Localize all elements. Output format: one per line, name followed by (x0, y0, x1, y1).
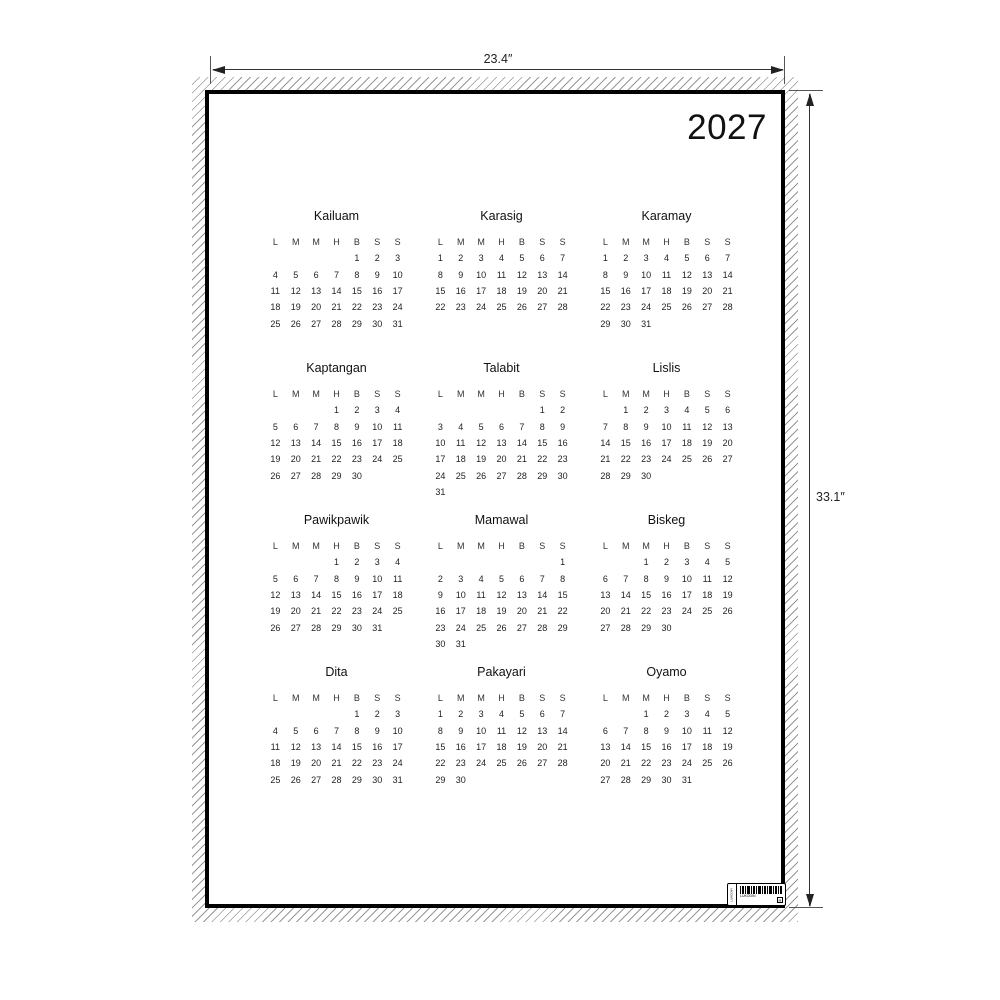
day-cell: 31 (636, 315, 656, 331)
day-cell: 7 (326, 267, 346, 283)
day-cell: 30 (367, 315, 387, 331)
empty-day-cell (491, 484, 511, 500)
day-cell: 12 (286, 283, 306, 299)
day-cell: 21 (552, 739, 572, 755)
day-cell: 20 (286, 451, 306, 467)
day-cell: 3 (471, 250, 491, 266)
day-cell: 29 (636, 619, 656, 635)
day-cell: 9 (347, 419, 367, 435)
day-cell: 6 (306, 267, 326, 283)
day-cell: 30 (656, 771, 676, 787)
day-cell: 14 (326, 283, 346, 299)
day-cell: 17 (656, 435, 676, 451)
day-cell: 9 (552, 419, 572, 435)
weekday-letter: L (595, 538, 615, 554)
day-cell: 8 (636, 723, 656, 739)
empty-day-cell (451, 402, 471, 418)
empty-day-cell (471, 771, 491, 787)
day-cell: 13 (306, 283, 326, 299)
day-cell: 1 (326, 402, 346, 418)
day-cell: 29 (326, 619, 346, 635)
barcode-label: LUKODIN LUKODIN R (727, 883, 786, 906)
weekday-letter: L (265, 386, 285, 402)
weekday-letter: M (471, 690, 491, 706)
weekday-letter: B (677, 538, 697, 554)
day-cell: 24 (387, 299, 407, 315)
day-cell: 11 (491, 723, 511, 739)
day-cell: 19 (265, 603, 285, 619)
day-cell: 11 (387, 419, 407, 435)
day-cell: 8 (430, 267, 450, 283)
day-cell: 29 (552, 619, 572, 635)
weekday-letter: S (717, 690, 737, 706)
day-cell: 23 (656, 755, 676, 771)
weekday-letter: M (616, 386, 636, 402)
day-cell: 30 (347, 467, 367, 483)
day-cell: 11 (265, 739, 285, 755)
empty-day-cell (306, 402, 326, 418)
day-cell: 4 (265, 723, 285, 739)
day-cell: 22 (636, 755, 656, 771)
day-cell: 7 (306, 571, 326, 587)
day-cell: 1 (636, 706, 656, 722)
weekday-letter: S (387, 690, 407, 706)
day-cell: 21 (616, 755, 636, 771)
weekday-letter: H (656, 234, 676, 250)
empty-day-cell (697, 467, 717, 483)
day-cell: 15 (595, 283, 615, 299)
day-cell: 24 (451, 619, 471, 635)
day-cell: 5 (512, 706, 532, 722)
day-cell: 10 (430, 435, 450, 451)
day-cell: 27 (717, 451, 737, 467)
weekday-letter: L (595, 690, 615, 706)
day-cell: 14 (616, 587, 636, 603)
day-cell: 3 (677, 554, 697, 570)
weekday-letter: L (265, 538, 285, 554)
day-cell: 3 (451, 571, 471, 587)
day-cell: 29 (636, 771, 656, 787)
day-cell: 28 (306, 619, 326, 635)
empty-day-cell (451, 554, 471, 570)
weekday-letter: H (326, 538, 346, 554)
weekday-letter: H (326, 234, 346, 250)
day-cell: 3 (430, 419, 450, 435)
empty-day-cell (552, 636, 572, 652)
day-cell: 24 (677, 755, 697, 771)
day-cell: 31 (367, 619, 387, 635)
empty-day-cell (430, 402, 450, 418)
day-cell: 18 (697, 739, 717, 755)
day-cell: 6 (595, 723, 615, 739)
day-cell: 28 (326, 315, 346, 331)
day-cell: 25 (491, 755, 511, 771)
day-cell: 26 (717, 755, 737, 771)
day-cell: 5 (286, 723, 306, 739)
day-cell: 26 (512, 755, 532, 771)
weekday-letter: L (265, 690, 285, 706)
day-cell: 2 (552, 402, 572, 418)
weekday-letter: S (717, 386, 737, 402)
weekday-letter: H (491, 690, 511, 706)
weekday-letter: S (387, 538, 407, 554)
day-cell: 17 (677, 739, 697, 755)
empty-day-cell (286, 706, 306, 722)
weekday-letter: B (512, 234, 532, 250)
month-table: LMMHBSS123456789101112131415161718192021… (265, 690, 408, 788)
day-cell: 21 (512, 451, 532, 467)
day-cell: 1 (347, 706, 367, 722)
day-cell: 5 (717, 706, 737, 722)
day-cell: 15 (636, 739, 656, 755)
day-cell: 23 (656, 603, 676, 619)
month-table: LMMHBSS123456789101112131415161718192021… (595, 690, 738, 788)
weekday-letter: L (595, 386, 615, 402)
weekday-letter: M (286, 386, 306, 402)
weekday-letter: H (491, 234, 511, 250)
day-cell: 20 (595, 755, 615, 771)
month-title: Pawikpawik (304, 512, 369, 528)
day-cell: 25 (471, 619, 491, 635)
empty-day-cell (265, 706, 285, 722)
weekday-letter: S (387, 386, 407, 402)
day-cell: 6 (595, 571, 615, 587)
month-block: KarasigLMMHBSS12345678910111213141516171… (430, 208, 573, 360)
day-cell: 9 (367, 723, 387, 739)
weekday-letter: B (512, 538, 532, 554)
weekday-letter: M (451, 690, 471, 706)
day-cell: 11 (491, 267, 511, 283)
day-cell: 13 (306, 739, 326, 755)
months-grid: KailuamLMMHBSS12345678910111213141516171… (265, 208, 738, 816)
month-title: Lislis (653, 360, 681, 376)
day-cell: 10 (367, 419, 387, 435)
day-cell: 14 (512, 435, 532, 451)
weekday-letter: M (616, 234, 636, 250)
empty-day-cell (512, 636, 532, 652)
empty-day-cell (306, 706, 326, 722)
day-cell: 13 (697, 267, 717, 283)
empty-day-cell (265, 554, 285, 570)
day-cell: 6 (286, 571, 306, 587)
day-cell: 17 (387, 739, 407, 755)
day-cell: 26 (286, 315, 306, 331)
day-cell: 31 (387, 315, 407, 331)
day-cell: 6 (286, 419, 306, 435)
day-cell: 17 (387, 283, 407, 299)
extension-tick-right-bottom (789, 907, 823, 908)
day-cell: 13 (717, 419, 737, 435)
day-cell: 15 (326, 435, 346, 451)
month-table: LMMHBSS123456789101112131415161718192021… (430, 386, 573, 500)
day-cell: 27 (286, 619, 306, 635)
day-cell: 8 (347, 267, 367, 283)
empty-day-cell (512, 402, 532, 418)
day-cell: 1 (430, 250, 450, 266)
day-cell: 9 (367, 267, 387, 283)
month-title: Oyamo (646, 664, 686, 680)
day-cell: 5 (265, 419, 285, 435)
day-cell: 10 (367, 571, 387, 587)
weekday-letter: M (286, 234, 306, 250)
weekday-letter: H (326, 386, 346, 402)
day-cell: 28 (552, 755, 572, 771)
day-cell: 19 (491, 603, 511, 619)
day-cell: 13 (532, 267, 552, 283)
day-cell: 30 (616, 315, 636, 331)
weekday-letter: M (286, 690, 306, 706)
day-cell: 25 (387, 603, 407, 619)
weekday-letter: H (491, 538, 511, 554)
day-cell: 20 (491, 451, 511, 467)
month-title: Biskeg (648, 512, 686, 528)
day-cell: 13 (286, 435, 306, 451)
day-cell: 26 (677, 299, 697, 315)
day-cell: 12 (286, 739, 306, 755)
day-cell: 11 (697, 571, 717, 587)
empty-day-cell (552, 771, 572, 787)
day-cell: 24 (636, 299, 656, 315)
weekday-letter: L (430, 386, 450, 402)
day-cell: 20 (697, 283, 717, 299)
day-cell: 20 (717, 435, 737, 451)
day-cell: 17 (471, 739, 491, 755)
day-cell: 2 (347, 554, 367, 570)
empty-day-cell (656, 467, 676, 483)
day-cell: 7 (616, 723, 636, 739)
weekday-letter: M (636, 538, 656, 554)
day-cell: 7 (717, 250, 737, 266)
weekday-letter: S (532, 538, 552, 554)
day-cell: 14 (306, 435, 326, 451)
weekday-letter: M (306, 386, 326, 402)
day-cell: 15 (636, 587, 656, 603)
empty-day-cell (265, 402, 285, 418)
empty-day-cell (697, 315, 717, 331)
weekday-letter: M (636, 234, 656, 250)
day-cell: 15 (532, 435, 552, 451)
day-cell: 3 (387, 706, 407, 722)
day-cell: 6 (532, 706, 552, 722)
day-cell: 4 (387, 554, 407, 570)
day-cell: 8 (636, 571, 656, 587)
day-cell: 11 (387, 571, 407, 587)
month-block: OyamoLMMHBSS1234567891011121314151617181… (595, 664, 738, 816)
day-cell: 15 (347, 739, 367, 755)
empty-day-cell (265, 250, 285, 266)
empty-day-cell (616, 706, 636, 722)
weekday-letter: M (451, 386, 471, 402)
extension-tick-right-top (789, 90, 823, 91)
day-cell: 15 (552, 587, 572, 603)
day-cell: 19 (512, 283, 532, 299)
day-cell: 23 (636, 451, 656, 467)
day-cell: 24 (367, 603, 387, 619)
day-cell: 12 (471, 435, 491, 451)
arrowhead-down-icon (806, 894, 814, 907)
weekday-letter: B (347, 538, 367, 554)
day-cell: 18 (387, 435, 407, 451)
weekday-letter: B (512, 386, 532, 402)
day-cell: 15 (616, 435, 636, 451)
day-cell: 10 (677, 571, 697, 587)
day-cell: 21 (616, 603, 636, 619)
month-table: LMMHBSS123456789101112131415161718192021… (430, 234, 573, 315)
day-cell: 27 (532, 299, 552, 315)
month-block: BiskegLMMHBSS123456789101112131415161718… (595, 512, 738, 664)
weekday-letter: L (430, 538, 450, 554)
weekday-letter: S (697, 234, 717, 250)
month-block: MamawalLMMHBSS12345678910111213141516171… (430, 512, 573, 664)
empty-day-cell (512, 484, 532, 500)
day-cell: 2 (347, 402, 367, 418)
day-cell: 29 (326, 467, 346, 483)
year-title: 2027 (687, 108, 767, 148)
month-block: PawikpawikLMMHBSS12345678910111213141516… (265, 512, 408, 664)
empty-day-cell (697, 771, 717, 787)
day-cell: 2 (451, 706, 471, 722)
day-cell: 18 (656, 283, 676, 299)
day-cell: 1 (552, 554, 572, 570)
day-cell: 17 (471, 283, 491, 299)
day-cell: 22 (347, 755, 367, 771)
month-title: Pakayari (477, 664, 526, 680)
day-cell: 26 (697, 451, 717, 467)
empty-day-cell (286, 250, 306, 266)
day-cell: 1 (430, 706, 450, 722)
day-cell: 24 (367, 451, 387, 467)
day-cell: 17 (430, 451, 450, 467)
month-table: LMMHBSS123456789101112131415161718192021… (265, 538, 408, 636)
empty-day-cell (471, 402, 491, 418)
day-cell: 22 (636, 603, 656, 619)
weekday-letter: S (697, 386, 717, 402)
day-cell: 5 (677, 250, 697, 266)
empty-day-cell (532, 771, 552, 787)
day-cell: 17 (367, 435, 387, 451)
day-cell: 7 (532, 571, 552, 587)
day-cell: 9 (636, 419, 656, 435)
day-cell: 1 (616, 402, 636, 418)
month-table: LMMHBSS123456789101112131415161718192021… (265, 386, 408, 484)
day-cell: 18 (265, 299, 285, 315)
day-cell: 12 (491, 587, 511, 603)
height-dimension-label: 33.1″ (813, 490, 848, 504)
empty-day-cell (451, 484, 471, 500)
empty-day-cell (387, 619, 407, 635)
day-cell: 11 (471, 587, 491, 603)
day-cell: 14 (616, 739, 636, 755)
weekday-letter: S (717, 538, 737, 554)
day-cell: 4 (697, 706, 717, 722)
day-cell: 27 (306, 315, 326, 331)
weekday-letter: S (717, 234, 737, 250)
month-block: KaramayLMMHBSS12345678910111213141516171… (595, 208, 738, 360)
day-cell: 18 (387, 587, 407, 603)
weekday-letter: M (471, 386, 491, 402)
day-cell: 4 (387, 402, 407, 418)
weekday-letter: L (430, 690, 450, 706)
day-cell: 19 (471, 451, 491, 467)
day-cell: 25 (697, 755, 717, 771)
day-cell: 25 (387, 451, 407, 467)
day-cell: 6 (512, 571, 532, 587)
day-cell: 31 (387, 771, 407, 787)
weekday-letter: L (595, 234, 615, 250)
day-cell: 25 (677, 451, 697, 467)
weekday-letter: M (286, 538, 306, 554)
weekday-letter: S (532, 386, 552, 402)
weekday-letter: B (347, 690, 367, 706)
day-cell: 25 (491, 299, 511, 315)
day-cell: 31 (451, 636, 471, 652)
day-cell: 19 (286, 299, 306, 315)
day-cell: 10 (677, 723, 697, 739)
day-cell: 8 (532, 419, 552, 435)
arrowhead-right-icon (771, 66, 784, 74)
day-cell: 8 (552, 571, 572, 587)
day-cell: 15 (347, 283, 367, 299)
weekday-letter: S (367, 234, 387, 250)
day-cell: 20 (595, 603, 615, 619)
day-cell: 14 (595, 435, 615, 451)
day-cell: 5 (471, 419, 491, 435)
day-cell: 5 (265, 571, 285, 587)
day-cell: 3 (367, 554, 387, 570)
day-cell: 12 (717, 571, 737, 587)
empty-day-cell (430, 554, 450, 570)
month-title: Karasig (480, 208, 522, 224)
day-cell: 30 (367, 771, 387, 787)
day-cell: 2 (367, 250, 387, 266)
day-cell: 6 (306, 723, 326, 739)
day-cell: 27 (491, 467, 511, 483)
day-cell: 14 (532, 587, 552, 603)
day-cell: 19 (697, 435, 717, 451)
day-cell: 31 (677, 771, 697, 787)
width-dimension-label: 23.4″ (455, 52, 541, 66)
day-cell: 22 (552, 603, 572, 619)
barcode-caption: LUKODIN (740, 894, 782, 899)
empty-day-cell (326, 250, 346, 266)
month-table: LMMHBSS123456789101112131415161718192021… (430, 538, 573, 652)
month-block: PakayariLMMHBSS1234567891011121314151617… (430, 664, 573, 816)
weekday-letter: S (552, 386, 572, 402)
day-cell: 31 (430, 484, 450, 500)
month-table: LMMHBSS123456789101112131415161718192021… (595, 538, 738, 636)
day-cell: 1 (636, 554, 656, 570)
day-cell: 23 (367, 755, 387, 771)
day-cell: 27 (512, 619, 532, 635)
month-block: TalabitLMMHBSS12345678910111213141516171… (430, 360, 573, 512)
day-cell: 25 (265, 315, 285, 331)
day-cell: 4 (265, 267, 285, 283)
day-cell: 29 (430, 771, 450, 787)
day-cell: 16 (656, 587, 676, 603)
day-cell: 5 (512, 250, 532, 266)
day-cell: 27 (532, 755, 552, 771)
day-cell: 10 (387, 267, 407, 283)
day-cell: 6 (697, 250, 717, 266)
day-cell: 19 (677, 283, 697, 299)
day-cell: 2 (656, 554, 676, 570)
empty-day-cell (677, 619, 697, 635)
day-cell: 16 (451, 739, 471, 755)
day-cell: 6 (717, 402, 737, 418)
month-title: Talabit (483, 360, 519, 376)
day-cell: 20 (512, 603, 532, 619)
empty-day-cell (595, 706, 615, 722)
